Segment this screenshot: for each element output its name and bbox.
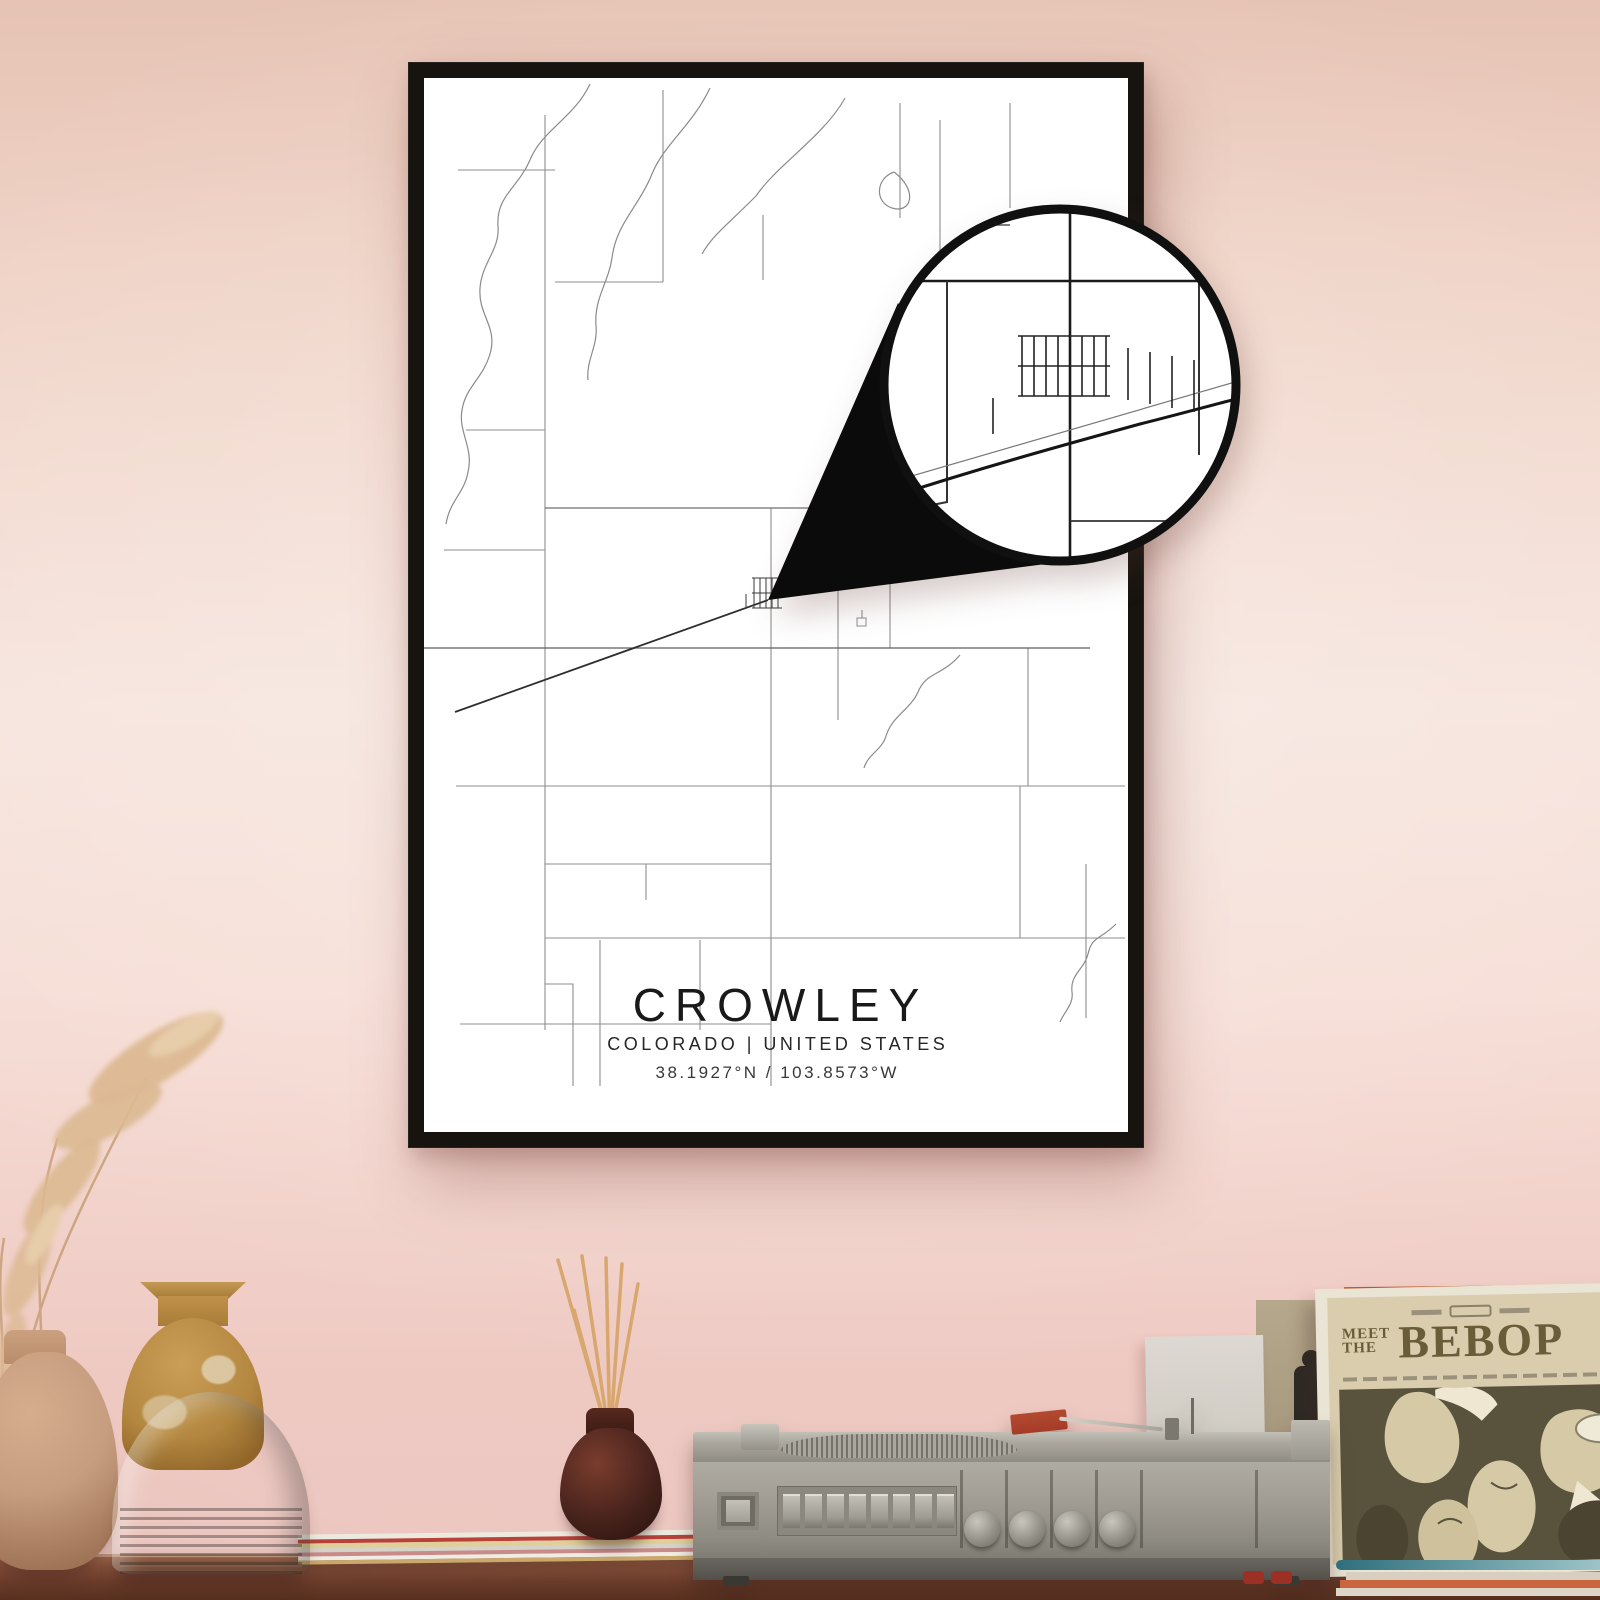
street-map [424,78,1128,1132]
push-button [937,1494,954,1528]
antenna [1191,1398,1194,1434]
records-stack-front [1336,1556,1600,1600]
room-scene: CROWLEY COLORADO | UNITED STATES 38.1927… [0,0,1600,1600]
tonearm-post [1165,1418,1179,1440]
album-title-block: MEET THE BEBOP [1342,1323,1565,1364]
map-poster: CROWLEY COLORADO | UNITED STATES 38.1927… [424,78,1128,1132]
power-button [717,1492,759,1530]
poster-title: CROWLEY [424,978,1128,1032]
push-button [827,1494,844,1528]
red-knob [1271,1571,1292,1584]
push-button [871,1494,888,1528]
poster-frame: CROWLEY COLORADO | UNITED STATES 38.1927… [408,62,1144,1148]
player-hinge [741,1424,779,1450]
album-title: BEBOP [1398,1319,1565,1362]
player-base [693,1558,1330,1580]
map-town-grid [746,578,782,608]
panel-groove [960,1470,963,1548]
album-subtitle-line [1343,1372,1600,1381]
push-button [849,1494,866,1528]
panel-groove [1050,1470,1053,1548]
poster-coordinates: 38.1927°N / 103.8573°W [424,1063,1128,1083]
album-cover: MEET THE BEBOP [1315,1283,1600,1577]
album-artwork [1339,1384,1600,1565]
bass-knob [1054,1511,1090,1547]
player-foot [723,1576,749,1586]
preset-button-row [777,1486,957,1536]
album-the: THE [1342,1341,1390,1356]
tonearm-headshell [1010,1409,1068,1435]
panel-groove [1140,1470,1143,1548]
tonearm [1059,1417,1163,1432]
volume-knob [964,1511,1000,1547]
map-rivers [446,84,1116,1022]
panel-groove [1255,1470,1258,1548]
push-button [915,1494,932,1528]
tuning-knob [1009,1511,1045,1547]
record-player [693,1416,1330,1584]
push-button [783,1494,800,1528]
panel-groove [1005,1470,1008,1548]
push-button [893,1494,910,1528]
player-front-panel [693,1462,1330,1558]
incense-bottle [560,1428,662,1540]
album-cover-art: MEET THE BEBOP [1327,1292,1600,1565]
player-right-box [1291,1420,1330,1460]
red-knob [1243,1571,1264,1584]
album-artwork-faces [1339,1383,1600,1564]
magazine-stack [298,1529,722,1564]
map-roads-minor [444,90,1125,1086]
poster-subtitle: COLORADO | UNITED STATES [424,1034,1128,1055]
push-button [805,1494,822,1528]
map-roads-major [424,508,1128,712]
panel-groove [1095,1470,1098,1548]
turntable-platter [781,1434,1017,1458]
map-highway [455,600,768,712]
treble-knob [1099,1511,1135,1547]
